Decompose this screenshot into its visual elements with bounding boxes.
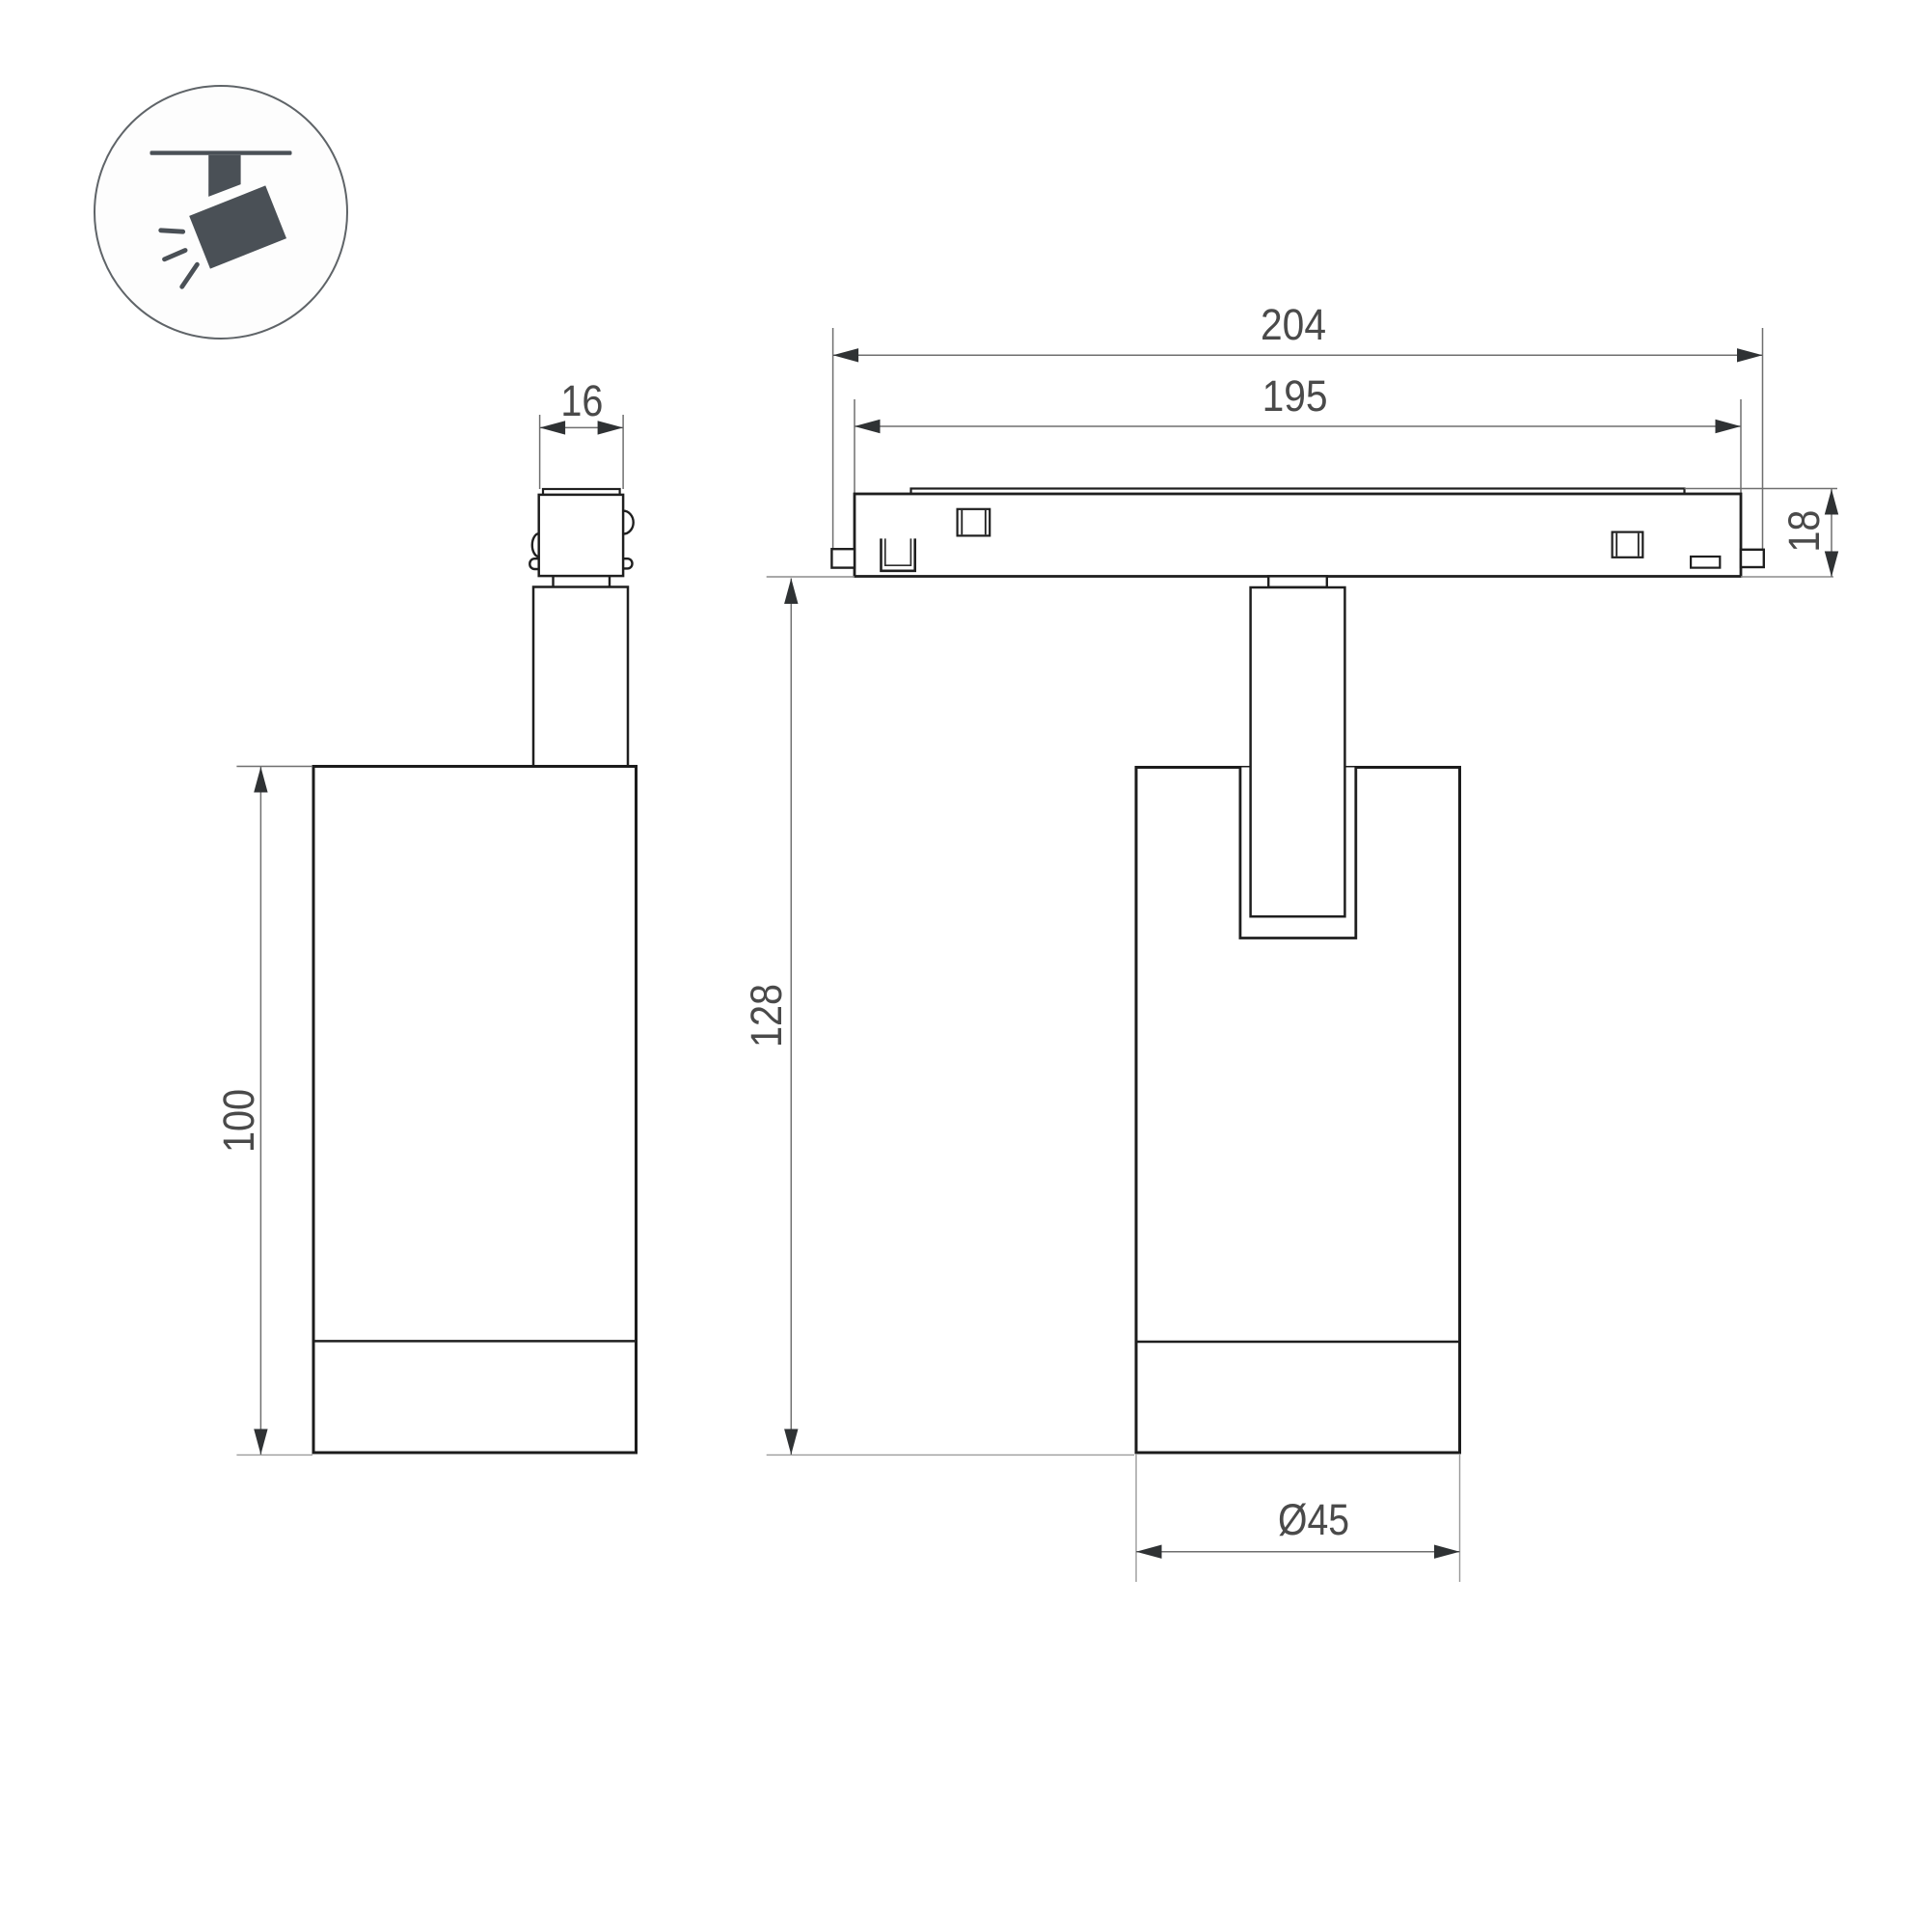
svg-text:18: 18 [1779, 510, 1829, 553]
svg-text:195: 195 [1262, 371, 1328, 421]
svg-text:16: 16 [560, 376, 603, 425]
svg-text:128: 128 [742, 984, 791, 1048]
svg-text:204: 204 [1261, 300, 1326, 349]
svg-text:Ø45: Ø45 [1278, 1495, 1349, 1544]
svg-text:100: 100 [214, 1089, 263, 1153]
